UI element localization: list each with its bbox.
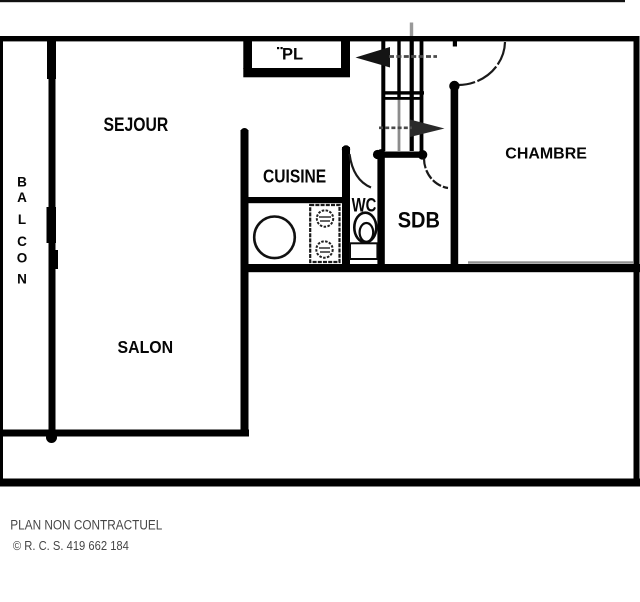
svg-text:O: O [17,250,28,265]
svg-text:B: B [17,175,27,190]
svg-text:A: A [17,190,27,205]
svg-text:WC: WC [352,194,377,216]
svg-text:SEJOUR: SEJOUR [104,115,169,136]
svg-text:N: N [17,271,27,286]
svg-text:SALON: SALON [118,337,174,357]
svg-text:L: L [18,212,26,227]
svg-text:CUISINE: CUISINE [263,167,326,187]
svg-text:© R. C. S. 419 662 184: © R. C. S. 419 662 184 [13,538,129,553]
svg-text:PL: PL [282,46,303,64]
svg-text:SDB: SDB [398,207,440,232]
svg-text:CHAMBRE: CHAMBRE [505,146,587,163]
svg-text:C: C [17,234,27,249]
svg-text:PLAN NON CONTRACTUEL: PLAN NON CONTRACTUEL [10,518,162,533]
